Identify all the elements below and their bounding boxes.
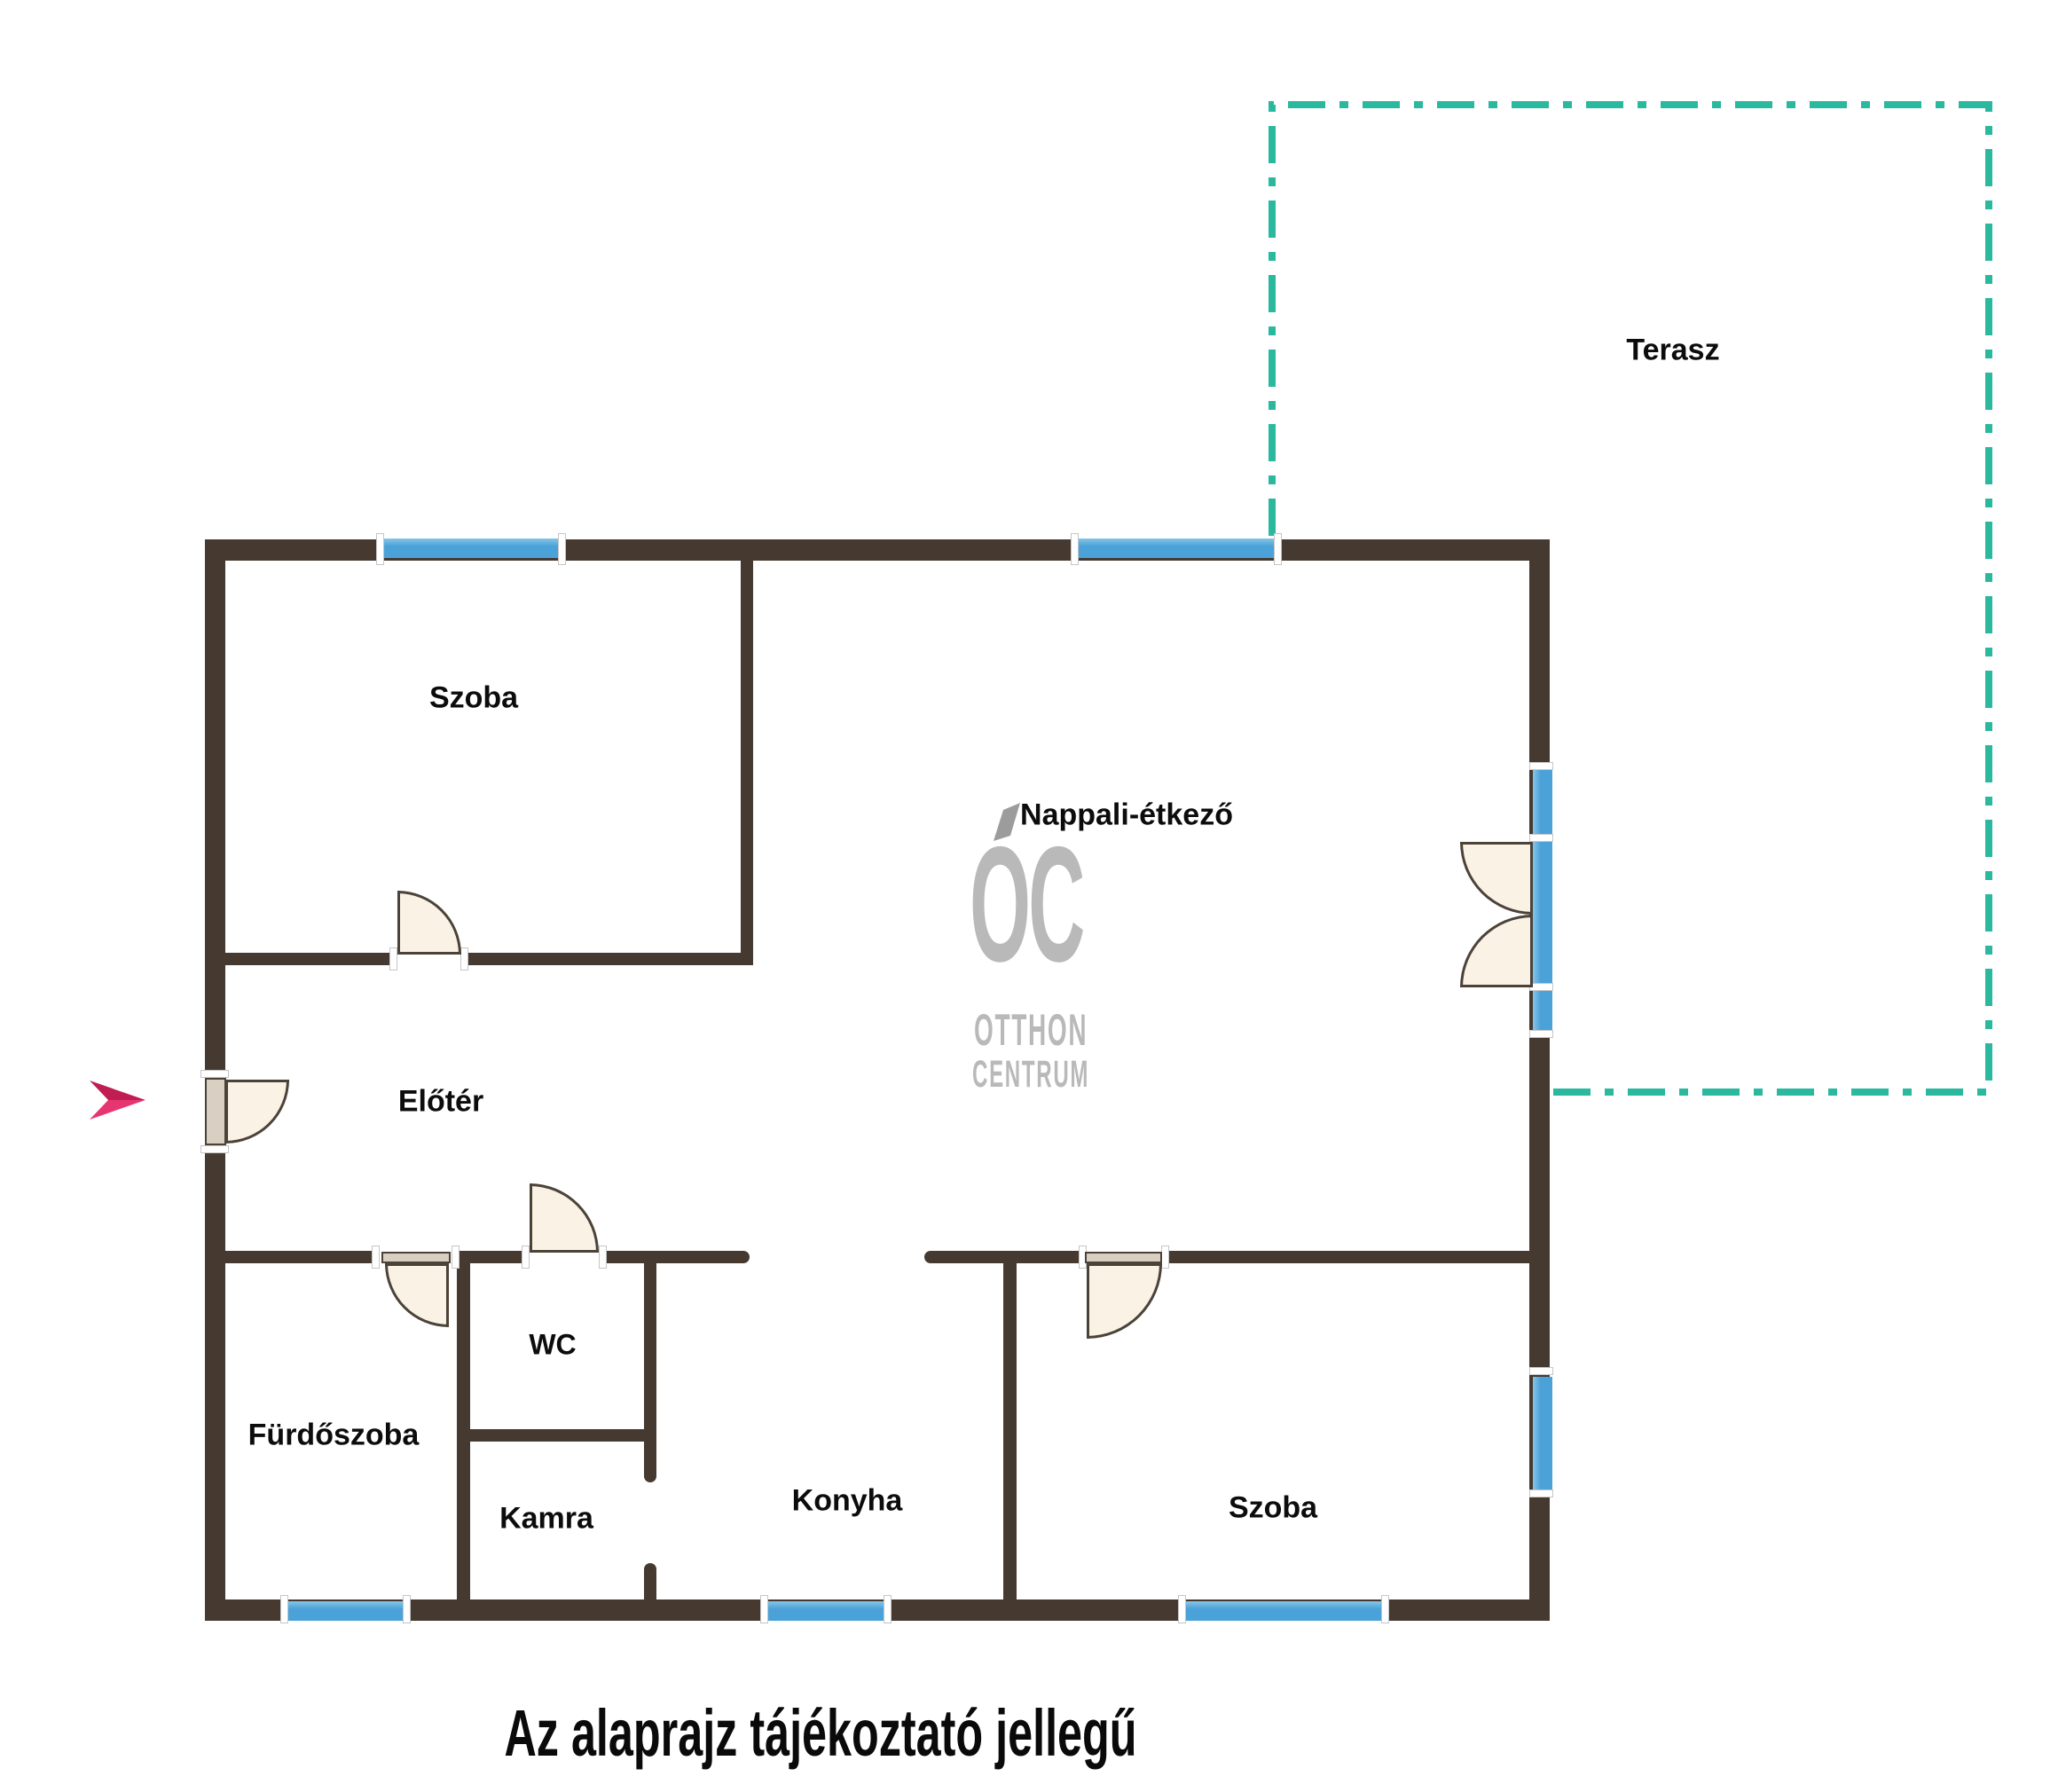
jamb-cap <box>1161 1246 1169 1269</box>
jamb-cap <box>1178 1595 1186 1623</box>
jamb-cap <box>460 947 468 971</box>
caption-text: Az alaprajz tájékoztató jellegű <box>504 1691 1136 1776</box>
jamb-cap <box>280 1595 288 1623</box>
jamb-cap <box>1529 834 1553 842</box>
window-szoba1-top <box>384 538 559 558</box>
jamb-cap <box>760 1595 768 1623</box>
jamb-cap <box>599 1246 607 1269</box>
label-szoba-2: Szoba <box>1229 1491 1317 1526</box>
overlay-graphics <box>0 0 2058 1792</box>
entrance-arrow-icon <box>90 1100 145 1120</box>
label-nappali: Nappali-étkező <box>1020 798 1233 833</box>
door-leaf-entrance <box>205 1078 226 1145</box>
door-leaf-szoba2 <box>1085 1252 1162 1263</box>
window-szoba2-bottom <box>1186 1601 1382 1621</box>
door-leaf-bathroom <box>381 1252 451 1263</box>
jamb-cap <box>372 1246 380 1269</box>
label-furdoszoba: Fürdőszoba <box>248 1419 420 1453</box>
jamb-cap <box>1529 1489 1553 1497</box>
jamb-cap <box>1071 533 1079 565</box>
jamb-cap <box>1529 983 1553 991</box>
terrace-dashed-outline <box>1272 105 1989 1092</box>
jamb-cap <box>389 947 397 971</box>
label-szoba-1: Szoba <box>429 681 518 716</box>
jamb-cap <box>452 1246 460 1269</box>
jamb-cap <box>376 533 384 565</box>
window-konyha-bottom <box>768 1601 884 1621</box>
jamb-cap <box>200 1070 229 1078</box>
window-nappali-top <box>1079 538 1275 558</box>
window-szoba2-right <box>1533 1377 1552 1490</box>
jamb-cap <box>558 533 566 565</box>
jamb-cap <box>1529 762 1553 770</box>
floor-plan-canvas: OC OTTHON CENTRUM Az alaprajz tájékoztat… <box>0 0 2058 1792</box>
jamb-cap <box>403 1595 411 1623</box>
label-eloter: Előtér <box>398 1085 483 1120</box>
jamb-cap <box>884 1595 892 1623</box>
jamb-cap <box>1274 533 1282 565</box>
label-terasz: Terasz <box>1626 334 1719 368</box>
window-terrace-door-glass <box>1533 770 1552 1031</box>
jamb-cap <box>1529 1367 1553 1375</box>
label-kamra: Kamra <box>499 1502 593 1537</box>
window-bathroom-bottom <box>288 1601 404 1621</box>
logo-flag-icon <box>994 803 1020 841</box>
jamb-cap <box>200 1145 229 1153</box>
label-konyha: Konyha <box>792 1484 903 1519</box>
label-wc: WC <box>529 1329 576 1362</box>
jamb-cap <box>522 1246 530 1269</box>
jamb-cap <box>1529 1030 1553 1038</box>
jamb-cap <box>1381 1595 1389 1623</box>
entrance-arrow-icon <box>90 1081 145 1100</box>
